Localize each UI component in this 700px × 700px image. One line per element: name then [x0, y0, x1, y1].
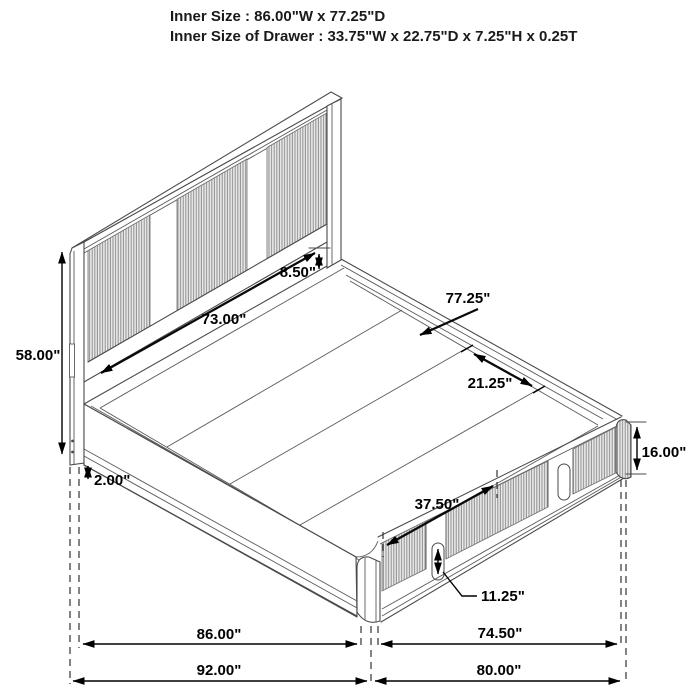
far-rail-outer-edge	[341, 259, 622, 416]
dim-label-headboard-panel-width: 73.00"	[202, 311, 247, 328]
dim-label-side-outer: 92.00"	[197, 662, 242, 679]
dim-label-bed-depth: 77.25"	[446, 290, 491, 307]
dim-label-headboard-gap: 8.50"	[280, 264, 316, 281]
tick-mark	[533, 386, 545, 393]
dim-label-base-height: 16.00"	[642, 444, 687, 461]
dim-label-leg-height: 2.00"	[94, 472, 130, 489]
bed-dimension-diagram: Inner Size : 86.00"W x 77.25"D Inner Siz…	[0, 0, 700, 700]
dim-label-slat-ledge: 21.25"	[468, 375, 513, 392]
front-corner-post	[357, 557, 380, 622]
headboard-right-post	[327, 99, 341, 268]
screw-hole	[71, 440, 74, 443]
dim-label-foot-outer: 80.00"	[477, 662, 522, 679]
slat-line	[230, 348, 467, 484]
dim-label-drawer-span: 37.50"	[415, 496, 460, 513]
diagram-canvas: 58.00" 73.00" 8.50" 77.25" 21.25" 16.00"…	[0, 0, 700, 700]
slat-line	[167, 310, 402, 447]
headboard-fluted-panel-left	[88, 215, 150, 362]
dim-label-side-inner: 86.00"	[197, 626, 242, 643]
dim-label-foot-inner: 74.50"	[478, 625, 523, 642]
screw-hole	[71, 451, 74, 454]
side-rail-face	[84, 404, 357, 617]
drawer-handle-slot-right	[558, 464, 570, 500]
rail-bracket	[70, 344, 75, 377]
dim-label-drawer-handle: 11.25"	[481, 588, 525, 605]
dim-label-headboard-height: 58.00"	[16, 347, 61, 364]
side-face-panel	[84, 404, 357, 616]
right-corner-post	[616, 420, 631, 479]
